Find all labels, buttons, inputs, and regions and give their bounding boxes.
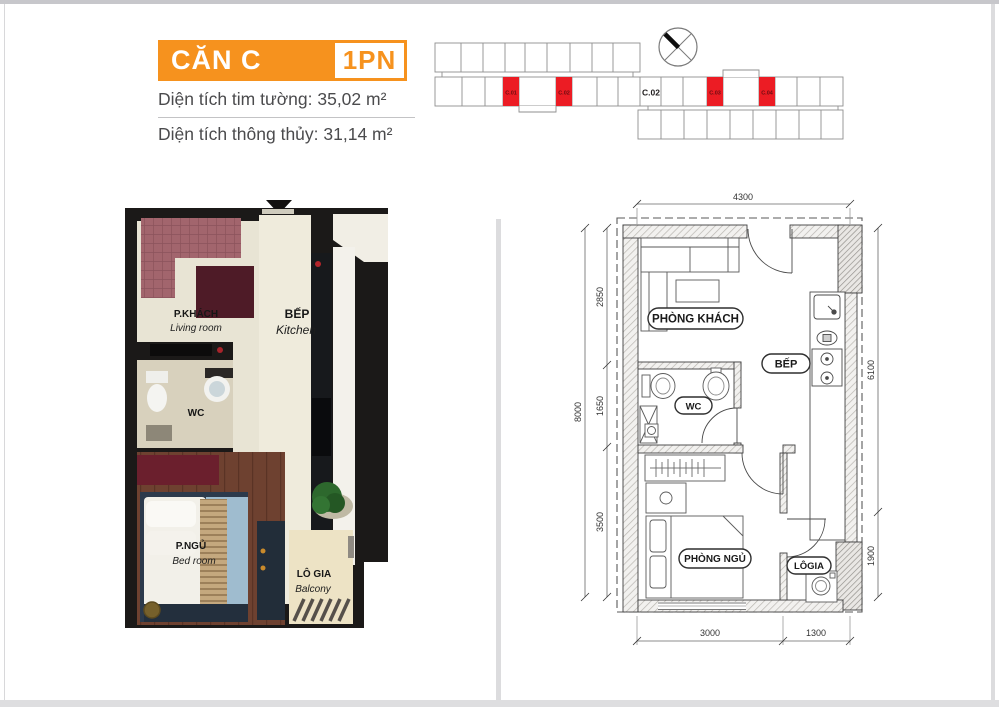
dim-top: 4300	[733, 192, 753, 202]
plan-bedroom-label: PHÒNG NGỦ	[684, 552, 746, 565]
render-body: P.KHÁCH Living room BẾP Kitchen WC P.NGỦ…	[125, 200, 388, 628]
dim-right-1: 6100	[866, 360, 876, 380]
render-kitchen-label: BẾP	[285, 306, 310, 321]
render-living-sublabel: Living room	[170, 323, 222, 334]
unit-c03-label: C.03	[709, 91, 721, 97]
unit-c02-label: C.02	[558, 91, 570, 97]
toilet-plan	[651, 374, 675, 399]
plan-kitchen-label: BẾP	[775, 358, 798, 371]
headboard-wall	[137, 455, 219, 485]
render-bedroom-label: P.NGỦ	[176, 539, 206, 552]
render-wc-label: WC	[188, 408, 205, 419]
gross-area-text: Diện tích tim tường: 35,02 m²	[158, 89, 428, 110]
compass-icon	[659, 28, 697, 66]
stool	[144, 602, 160, 618]
entry-door-arc	[748, 229, 792, 273]
area-divider	[158, 117, 415, 118]
bedroom-door-arc	[742, 453, 783, 494]
plan-living-label: PHÒNG KHÁCH	[652, 313, 739, 326]
dim-left-2: 1650	[595, 396, 605, 416]
render-floor-plan: P.KHÁCH Living room BẾP Kitchen WC P.NGỦ…	[118, 200, 390, 632]
technical-floor-plan: PHÒNG KHÁCH BẾP WC PHÒNG NGỦ LÔGIA	[555, 178, 995, 660]
stove	[812, 349, 842, 386]
dim-left-3: 3500	[595, 512, 605, 532]
plan-wc-label: WC	[686, 402, 702, 413]
coffee-table-plan	[676, 280, 719, 302]
unit-c04-label: C.04	[761, 91, 774, 97]
nightstand-plan	[646, 483, 686, 513]
dim-bottom-2: 1300	[806, 628, 826, 638]
tv-console	[150, 344, 212, 356]
kitchen-counter	[810, 292, 845, 540]
panel-divider	[496, 219, 501, 700]
block-label: C.02	[642, 88, 660, 98]
dim-right-2: 1900	[866, 546, 876, 566]
unit-header: CĂN C 1PN Diện tích tim tường: 35,02 m² …	[158, 40, 458, 145]
page-border-bottom	[0, 700, 999, 707]
render-balcony-sublabel: Balcony	[295, 584, 332, 595]
site-blocks	[435, 43, 843, 139]
bedroom-window	[658, 602, 746, 610]
page-border-left	[4, 4, 5, 700]
render-living-label: P.KHÁCH	[174, 307, 218, 320]
unit-type-badge: 1PN	[335, 43, 404, 78]
plan-balcony-label: LÔGIA	[794, 560, 824, 572]
unit-name: CĂN C	[158, 40, 332, 81]
kitchen-sink	[814, 295, 840, 319]
render-balcony-label: LÔ GIA	[297, 567, 331, 580]
brochure-page: CĂN C 1PN Diện tích tim tường: 35,02 m² …	[0, 0, 999, 707]
toilet	[147, 384, 167, 412]
site-plan-diagram: C.01 C.02 C.03 C.04 C.02	[430, 25, 850, 145]
unit-title-box: CĂN C 1PN	[158, 40, 407, 81]
dim-left-1: 2850	[595, 287, 605, 307]
wardrobe-3d	[257, 521, 285, 620]
bedroom-furniture	[645, 455, 837, 602]
basin-plan	[703, 372, 729, 400]
page-border-top	[0, 0, 999, 4]
unit-c01-label: C.01	[505, 91, 517, 97]
dim-left-total: 8000	[573, 402, 583, 422]
render-kitchen-sublabel: Kitchen	[276, 323, 316, 337]
dim-bottom-1: 3000	[700, 628, 720, 638]
net-area-text: Diện tích thông thủy: 31,14 m²	[158, 124, 428, 145]
render-bedroom-sublabel: Bed room	[172, 556, 215, 567]
